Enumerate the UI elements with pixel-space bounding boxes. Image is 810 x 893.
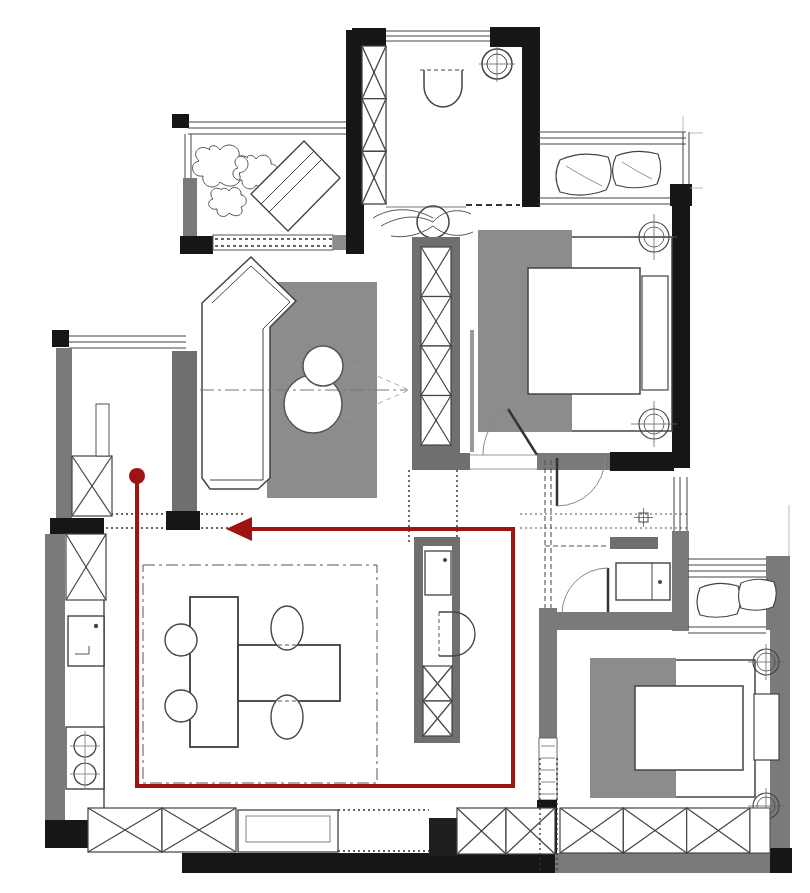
wall-foyer-topcorner — [52, 330, 69, 347]
foyer-door-leaf — [96, 404, 109, 456]
bed2-bench — [754, 694, 779, 760]
wall-left-lower — [45, 534, 65, 824]
wall-balcony-right-gray — [333, 235, 346, 250]
wall-foyer-inner — [172, 351, 197, 514]
entry-door — [429, 818, 457, 856]
foyer-cabinet — [72, 456, 112, 516]
wall-entry-south — [182, 853, 555, 873]
dining-side-table — [238, 645, 340, 701]
window-balcony3-top — [688, 559, 768, 577]
bedroom2-wardrobe-end — [750, 808, 770, 853]
window-foyer-top — [69, 336, 186, 348]
plant-foliage — [209, 188, 247, 217]
vanity-faucet — [658, 580, 662, 584]
pillow — [739, 579, 777, 610]
pillow — [613, 151, 661, 187]
wall-balcony-right-black — [346, 229, 364, 254]
foyer-cabinet — [66, 534, 106, 600]
laundry-basin — [424, 70, 462, 107]
dining-chair-oval — [271, 606, 303, 650]
wall-utility-topleft — [352, 28, 386, 46]
window-balcony-top — [188, 122, 352, 134]
wall-bedroom2-se-corner — [770, 848, 792, 873]
wall-left-bottomcorner — [45, 820, 89, 848]
wall-bedroom2-north — [557, 612, 672, 630]
window-balcony3-inner — [688, 627, 766, 633]
wall-bedroom1-right — [672, 188, 690, 468]
window-balcony2-right — [683, 132, 689, 188]
bed1-bench — [642, 276, 668, 390]
bed1-mattress — [528, 268, 640, 394]
dining-table — [190, 597, 238, 747]
island-cabinet — [423, 666, 452, 736]
floor-plan-page — [0, 0, 810, 893]
pillow — [556, 154, 611, 195]
wall-left-cap — [50, 518, 104, 534]
floor-plan-canvas — [0, 0, 810, 893]
bedroom2-sliding-door — [539, 738, 557, 800]
wall-utility-right — [522, 27, 540, 207]
vanity-shelf — [610, 537, 658, 549]
utility-cabinet — [362, 46, 386, 204]
wall-balcony-topleft-corner — [172, 114, 189, 128]
window-bathroom — [674, 477, 687, 533]
wall-bedroom1-south-gray — [537, 453, 613, 470]
window-balcony2-top — [538, 132, 686, 144]
wall-bedroom2-west — [539, 608, 557, 738]
bathroom-door2-arc — [562, 568, 608, 614]
kitchen-sink — [68, 616, 104, 666]
dining-chair-round — [165, 690, 197, 722]
island-sink — [425, 551, 451, 595]
window-utility-top — [386, 31, 492, 41]
wall-bathroom-right — [672, 531, 689, 631]
sliding-track — [470, 330, 474, 452]
door-threshold — [470, 455, 537, 469]
window-bedroom1-balcony — [538, 198, 670, 204]
bedroom2-wardrobe — [560, 808, 750, 853]
sink-faucet — [94, 624, 98, 628]
island-faucet — [443, 558, 447, 562]
wall-balcony-left-bottom — [180, 236, 213, 254]
tv-cabinet-cap — [412, 453, 470, 470]
wall-left-upper — [56, 348, 72, 520]
wall-bedroom1-south-black — [610, 452, 674, 471]
route-arrow-head — [226, 517, 252, 541]
pillow — [697, 583, 741, 617]
bed2-mattress — [635, 686, 743, 770]
dining-chair-oval — [271, 695, 303, 739]
sliding-door-band — [213, 235, 333, 250]
route-start-dot — [129, 468, 145, 484]
wall-balcony-left-mid — [183, 178, 197, 238]
entry-shoe-cabinet — [88, 808, 236, 852]
hall-plant-branches — [373, 210, 473, 237]
wall-bedroom2-south — [555, 853, 792, 873]
wall-utility-left — [346, 30, 364, 230]
tv-cabinet-cells — [421, 247, 451, 445]
coffee-table-small — [303, 346, 343, 386]
dining-chair-round — [165, 624, 197, 656]
wall-foyer-inner-cap — [166, 511, 200, 530]
